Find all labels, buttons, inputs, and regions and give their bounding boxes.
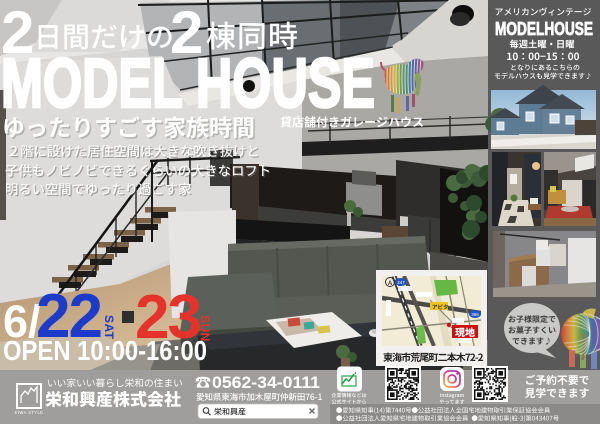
svg-text:366: 366 bbox=[471, 312, 479, 317]
svg-text:247: 247 bbox=[397, 280, 405, 285]
svg-text:OPEN 10:00-16:00: OPEN 10:00-16:00 bbox=[3, 335, 207, 366]
svg-text:MODEL HOUSE: MODEL HOUSE bbox=[1, 44, 375, 122]
svg-text:0562-34-0111: 0562-34-0111 bbox=[212, 374, 320, 392]
svg-text:EIWA STYLE: EIWA STYLE bbox=[15, 410, 44, 415]
svg-text:MODELHOUSE: MODELHOUSE bbox=[495, 19, 593, 39]
svg-text:A: A bbox=[388, 281, 393, 287]
